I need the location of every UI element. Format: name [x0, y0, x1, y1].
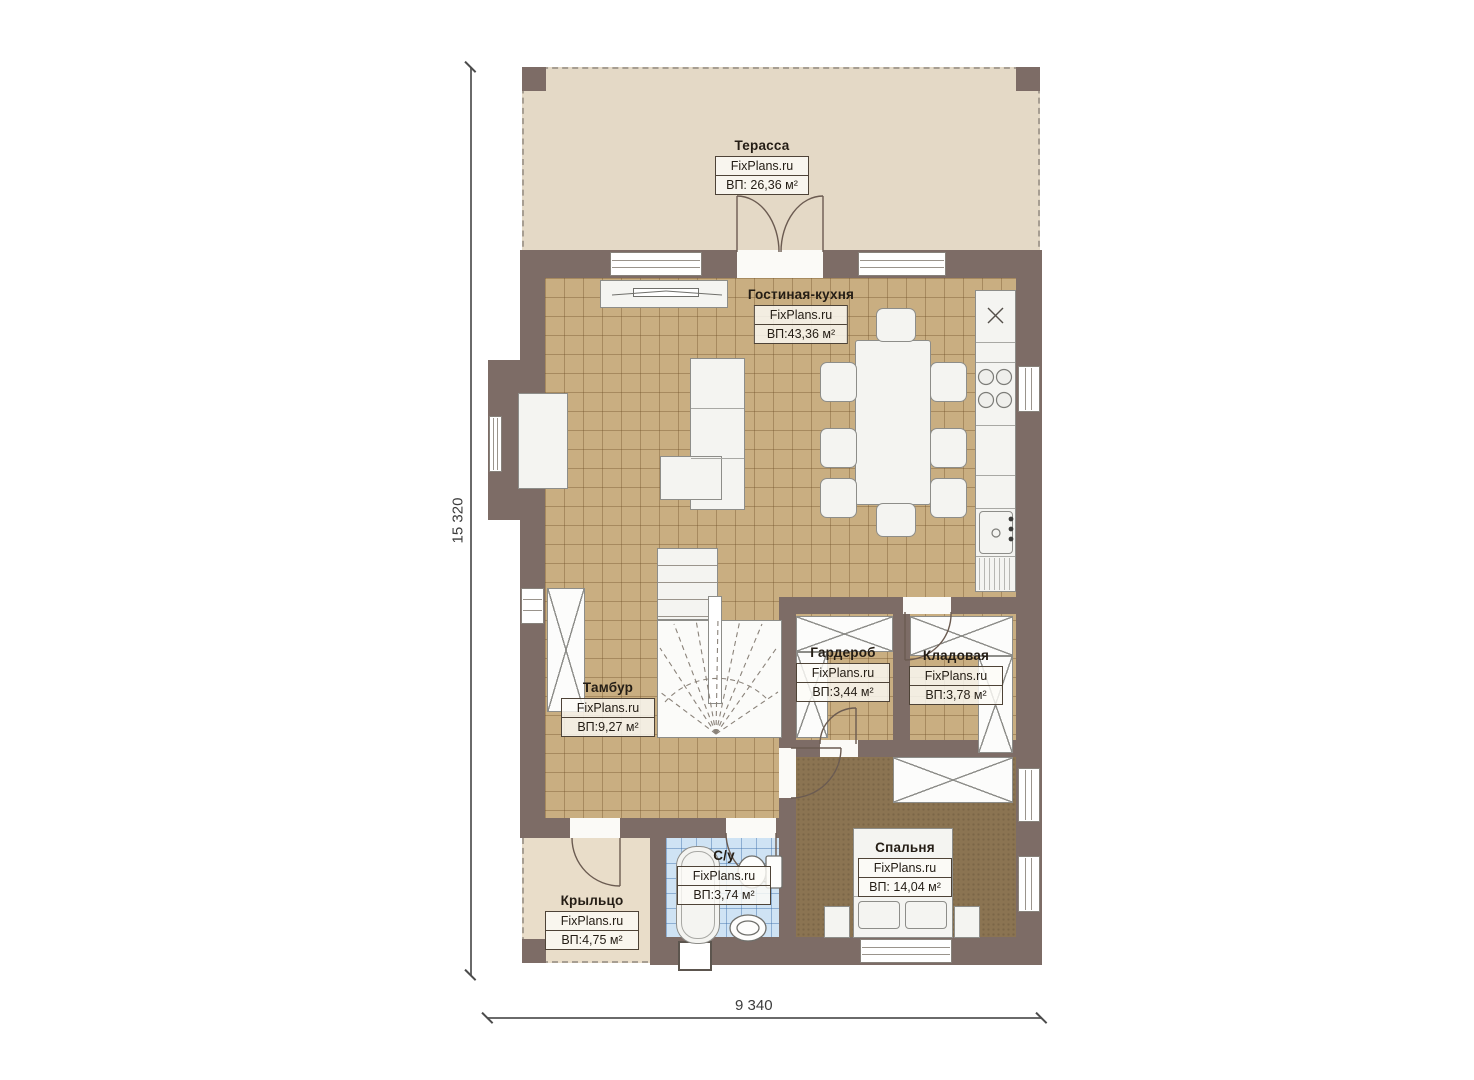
room-area-text: ВП:3,74 м² — [678, 886, 770, 904]
room-info-box: FixPlans.ru ВП:3,78 м² — [909, 666, 1003, 705]
entry-door-arc — [572, 838, 620, 886]
watermark-text: FixPlans.ru — [755, 306, 847, 325]
stove-burners-icon — [979, 370, 1012, 408]
room-label-bathroom: С/у FixPlans.ru ВП:3,74 м² — [677, 848, 771, 905]
watermark-text: FixPlans.ru — [797, 664, 889, 683]
room-area-text: ВП:3,78 м² — [910, 686, 1002, 704]
wardrobe-door-arc — [820, 708, 856, 744]
room-label-vestibule: Тамбур FixPlans.ru ВП:9,27 м² — [561, 680, 655, 737]
room-area-text: ВП:43,36 м² — [755, 325, 847, 343]
wash-basin-icon — [730, 915, 766, 941]
dimension-width-label: 9 340 — [735, 997, 773, 1014]
stairs-winder-fan — [660, 618, 778, 734]
room-area-text: ВП: 26,36 м² — [716, 176, 808, 194]
watermark-text: FixPlans.ru — [546, 912, 638, 931]
room-info-box: FixPlans.ru ВП: 26,36 м² — [715, 156, 809, 195]
dimension-line-horizontal — [487, 1017, 1042, 1019]
room-name: Крыльцо — [545, 893, 639, 908]
dimension-line-vertical — [470, 67, 472, 975]
room-label-living-kitchen: Гостиная-кухня FixPlans.ru ВП:43,36 м² — [748, 287, 854, 344]
watermark-text: FixPlans.ru — [716, 157, 808, 176]
watermark-text: FixPlans.ru — [678, 867, 770, 886]
floor-plan: Терасса FixPlans.ru ВП: 26,36 м² Гостина… — [0, 0, 1474, 1080]
watermark-text: FixPlans.ru — [859, 859, 951, 878]
watermark-text: FixPlans.ru — [562, 699, 654, 718]
room-info-box: FixPlans.ru ВП:3,44 м² — [796, 663, 890, 702]
room-info-box: FixPlans.ru ВП:4,75 м² — [545, 911, 639, 950]
room-info-box: FixPlans.ru ВП:3,74 м² — [677, 866, 771, 905]
room-name: Гостиная-кухня — [748, 287, 854, 302]
room-area-text: ВП:9,27 м² — [562, 718, 654, 736]
room-label-pantry: Кладовая FixPlans.ru ВП:3,78 м² — [909, 648, 1003, 705]
watermark-text: FixPlans.ru — [910, 667, 1002, 686]
room-name: Спальня — [858, 840, 952, 855]
room-name: С/у — [677, 848, 771, 863]
french-door-arc — [737, 196, 779, 252]
kitchen-corner-x-icon — [988, 308, 1003, 323]
dimension-height-label: 15 320 — [450, 491, 467, 551]
room-label-wardrobe: Гардероб FixPlans.ru ВП:3,44 м² — [796, 645, 890, 702]
room-label-bedroom: Спальня FixPlans.ru ВП: 14,04 м² — [858, 840, 952, 897]
room-info-box: FixPlans.ru ВП:43,36 м² — [754, 305, 848, 344]
room-area-text: ВП:3,44 м² — [797, 683, 889, 701]
room-area-text: ВП: 14,04 м² — [859, 878, 951, 896]
room-name: Тамбур — [561, 680, 655, 695]
room-name: Кладовая — [909, 648, 1003, 663]
tv-marks — [612, 291, 722, 295]
french-door-arc — [781, 196, 823, 252]
sink-drain-icon — [992, 517, 1013, 542]
room-area-text: ВП:4,75 м² — [546, 931, 638, 949]
bedroom-door-arc — [791, 748, 841, 798]
room-info-box: FixPlans.ru ВП: 14,04 м² — [858, 858, 952, 897]
room-info-box: FixPlans.ru ВП:9,27 м² — [561, 698, 655, 737]
room-label-terrace: Терасса FixPlans.ru ВП: 26,36 м² — [715, 138, 809, 195]
room-label-porch: Крыльцо FixPlans.ru ВП:4,75 м² — [545, 893, 639, 950]
room-name: Гардероб — [796, 645, 890, 660]
room-name: Терасса — [715, 138, 809, 153]
